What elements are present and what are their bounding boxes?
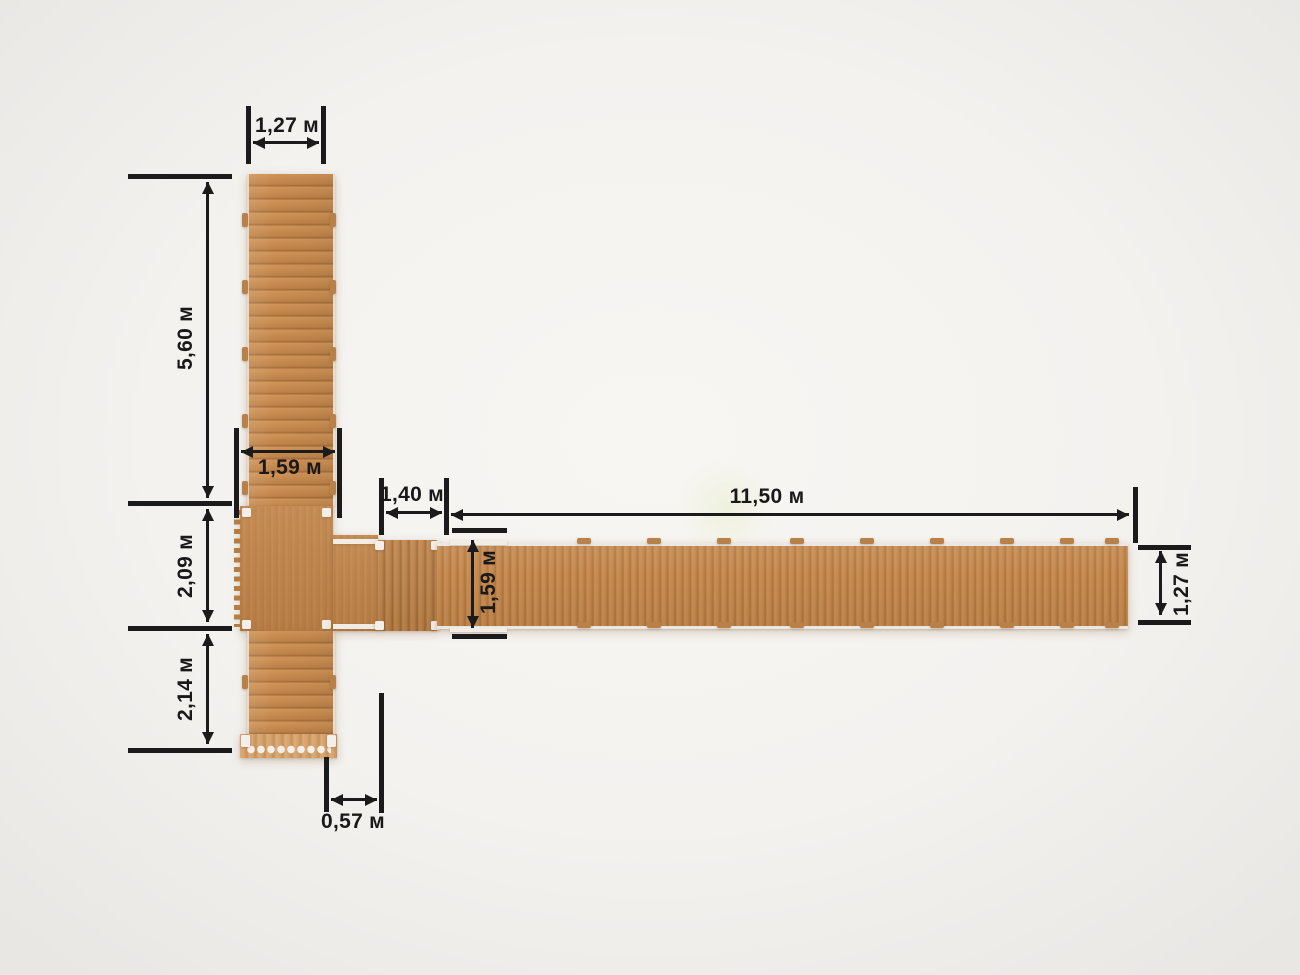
dim-tick — [321, 106, 326, 164]
pile-tab — [647, 622, 661, 628]
dim-arrow-right-width — [1159, 551, 1162, 615]
dim-tick — [379, 693, 384, 813]
pile-tab — [330, 213, 336, 227]
platform-apron — [333, 535, 378, 631]
end-step — [240, 734, 337, 758]
step-scallops — [246, 745, 331, 754]
dim-label-platform-length: 2,09 м — [174, 534, 198, 598]
pile-tab — [717, 622, 731, 628]
walkway-start-threshold — [450, 540, 507, 545]
pile-tab — [330, 347, 336, 361]
corner-bracket — [242, 620, 251, 629]
corner-bracket — [242, 508, 251, 517]
dim-tick — [1138, 620, 1191, 625]
dim-arrow-main-length — [451, 513, 1129, 516]
dim-arrow-upper-width — [241, 450, 335, 453]
dim-label-right-width: 1,27 м — [1170, 552, 1194, 616]
dim-arrow-bottom-offset — [331, 798, 377, 801]
dim-tick — [1133, 487, 1138, 543]
pile-tab — [242, 481, 248, 495]
pile-tab — [242, 414, 248, 428]
dim-tick — [128, 501, 232, 506]
dim-arrow-platform-length — [206, 509, 209, 622]
dim-tick — [337, 428, 342, 518]
walkway-lower-arm — [247, 631, 335, 734]
pile-tab — [1060, 622, 1074, 628]
central-platform — [240, 506, 333, 631]
dim-label-bottom-offset: 0,57 м — [321, 810, 385, 834]
dim-tick — [128, 626, 232, 631]
dim-tick — [1138, 545, 1191, 550]
corner-bracket — [327, 735, 336, 747]
dim-tick — [234, 428, 239, 518]
pile-tab — [930, 622, 944, 628]
dim-label-main-width: 1,59 м — [477, 550, 501, 614]
corner-bracket — [322, 508, 331, 517]
pile-tab — [330, 675, 336, 689]
dim-tick — [246, 106, 251, 164]
dim-label-left-upper: 5,60 м — [174, 306, 198, 370]
dim-tick — [452, 528, 507, 533]
pile-tab — [790, 622, 804, 628]
pile-tab — [1000, 538, 1014, 544]
walkway-plan-drawing: 1,27 м 5,60 м 1,59 м 2,09 м 2,14 м 0,57 … — [0, 0, 1300, 975]
pile-tab — [1000, 622, 1014, 628]
pile-tab — [330, 481, 336, 495]
pile-tab — [717, 538, 731, 544]
dim-tick — [444, 478, 449, 535]
pile-tab — [242, 347, 248, 361]
pile-tab — [860, 538, 874, 544]
pile-tab — [577, 538, 591, 544]
pile-serration — [234, 510, 241, 627]
corner-bracket — [375, 621, 384, 630]
dim-label-lower-length: 2,14 м — [174, 657, 198, 721]
dim-tick — [452, 634, 507, 639]
pile-tab — [1105, 622, 1119, 628]
apron-threshold — [333, 539, 378, 544]
dim-arrow-left-upper — [206, 182, 209, 498]
dim-tick — [128, 748, 232, 753]
corner-bracket — [375, 541, 384, 550]
pile-tab — [930, 538, 944, 544]
dim-tick — [324, 757, 329, 812]
pile-tab — [1105, 538, 1119, 544]
pile-tab — [330, 414, 336, 428]
pile-tab — [242, 213, 248, 227]
pile-tab — [647, 538, 661, 544]
pile-tab — [242, 675, 248, 689]
dim-arrow-ramp-length — [386, 511, 442, 514]
pile-tab — [1060, 538, 1074, 544]
corner-bracket — [322, 620, 331, 629]
dim-arrow-lower-length — [206, 634, 209, 744]
dim-label-ramp-length: 1,40 м — [380, 483, 444, 507]
dim-arrow-main-width — [471, 540, 474, 628]
apron-threshold — [333, 624, 375, 629]
pile-tab — [860, 622, 874, 628]
pile-tab — [790, 538, 804, 544]
dim-label-upper-width: 1,59 м — [258, 456, 322, 480]
pile-tab — [577, 622, 591, 628]
dim-label-top-width: 1,27 м — [255, 114, 319, 138]
dim-tick — [128, 174, 232, 179]
ramp-section — [378, 540, 437, 631]
dim-label-main-length: 11,50 м — [730, 485, 805, 509]
main-walkway — [437, 543, 1128, 629]
corner-bracket — [241, 735, 250, 747]
walkway-start-threshold — [450, 627, 507, 632]
pile-tab — [242, 280, 248, 294]
pile-tab — [330, 280, 336, 294]
dim-arrow-top-width — [253, 141, 319, 144]
